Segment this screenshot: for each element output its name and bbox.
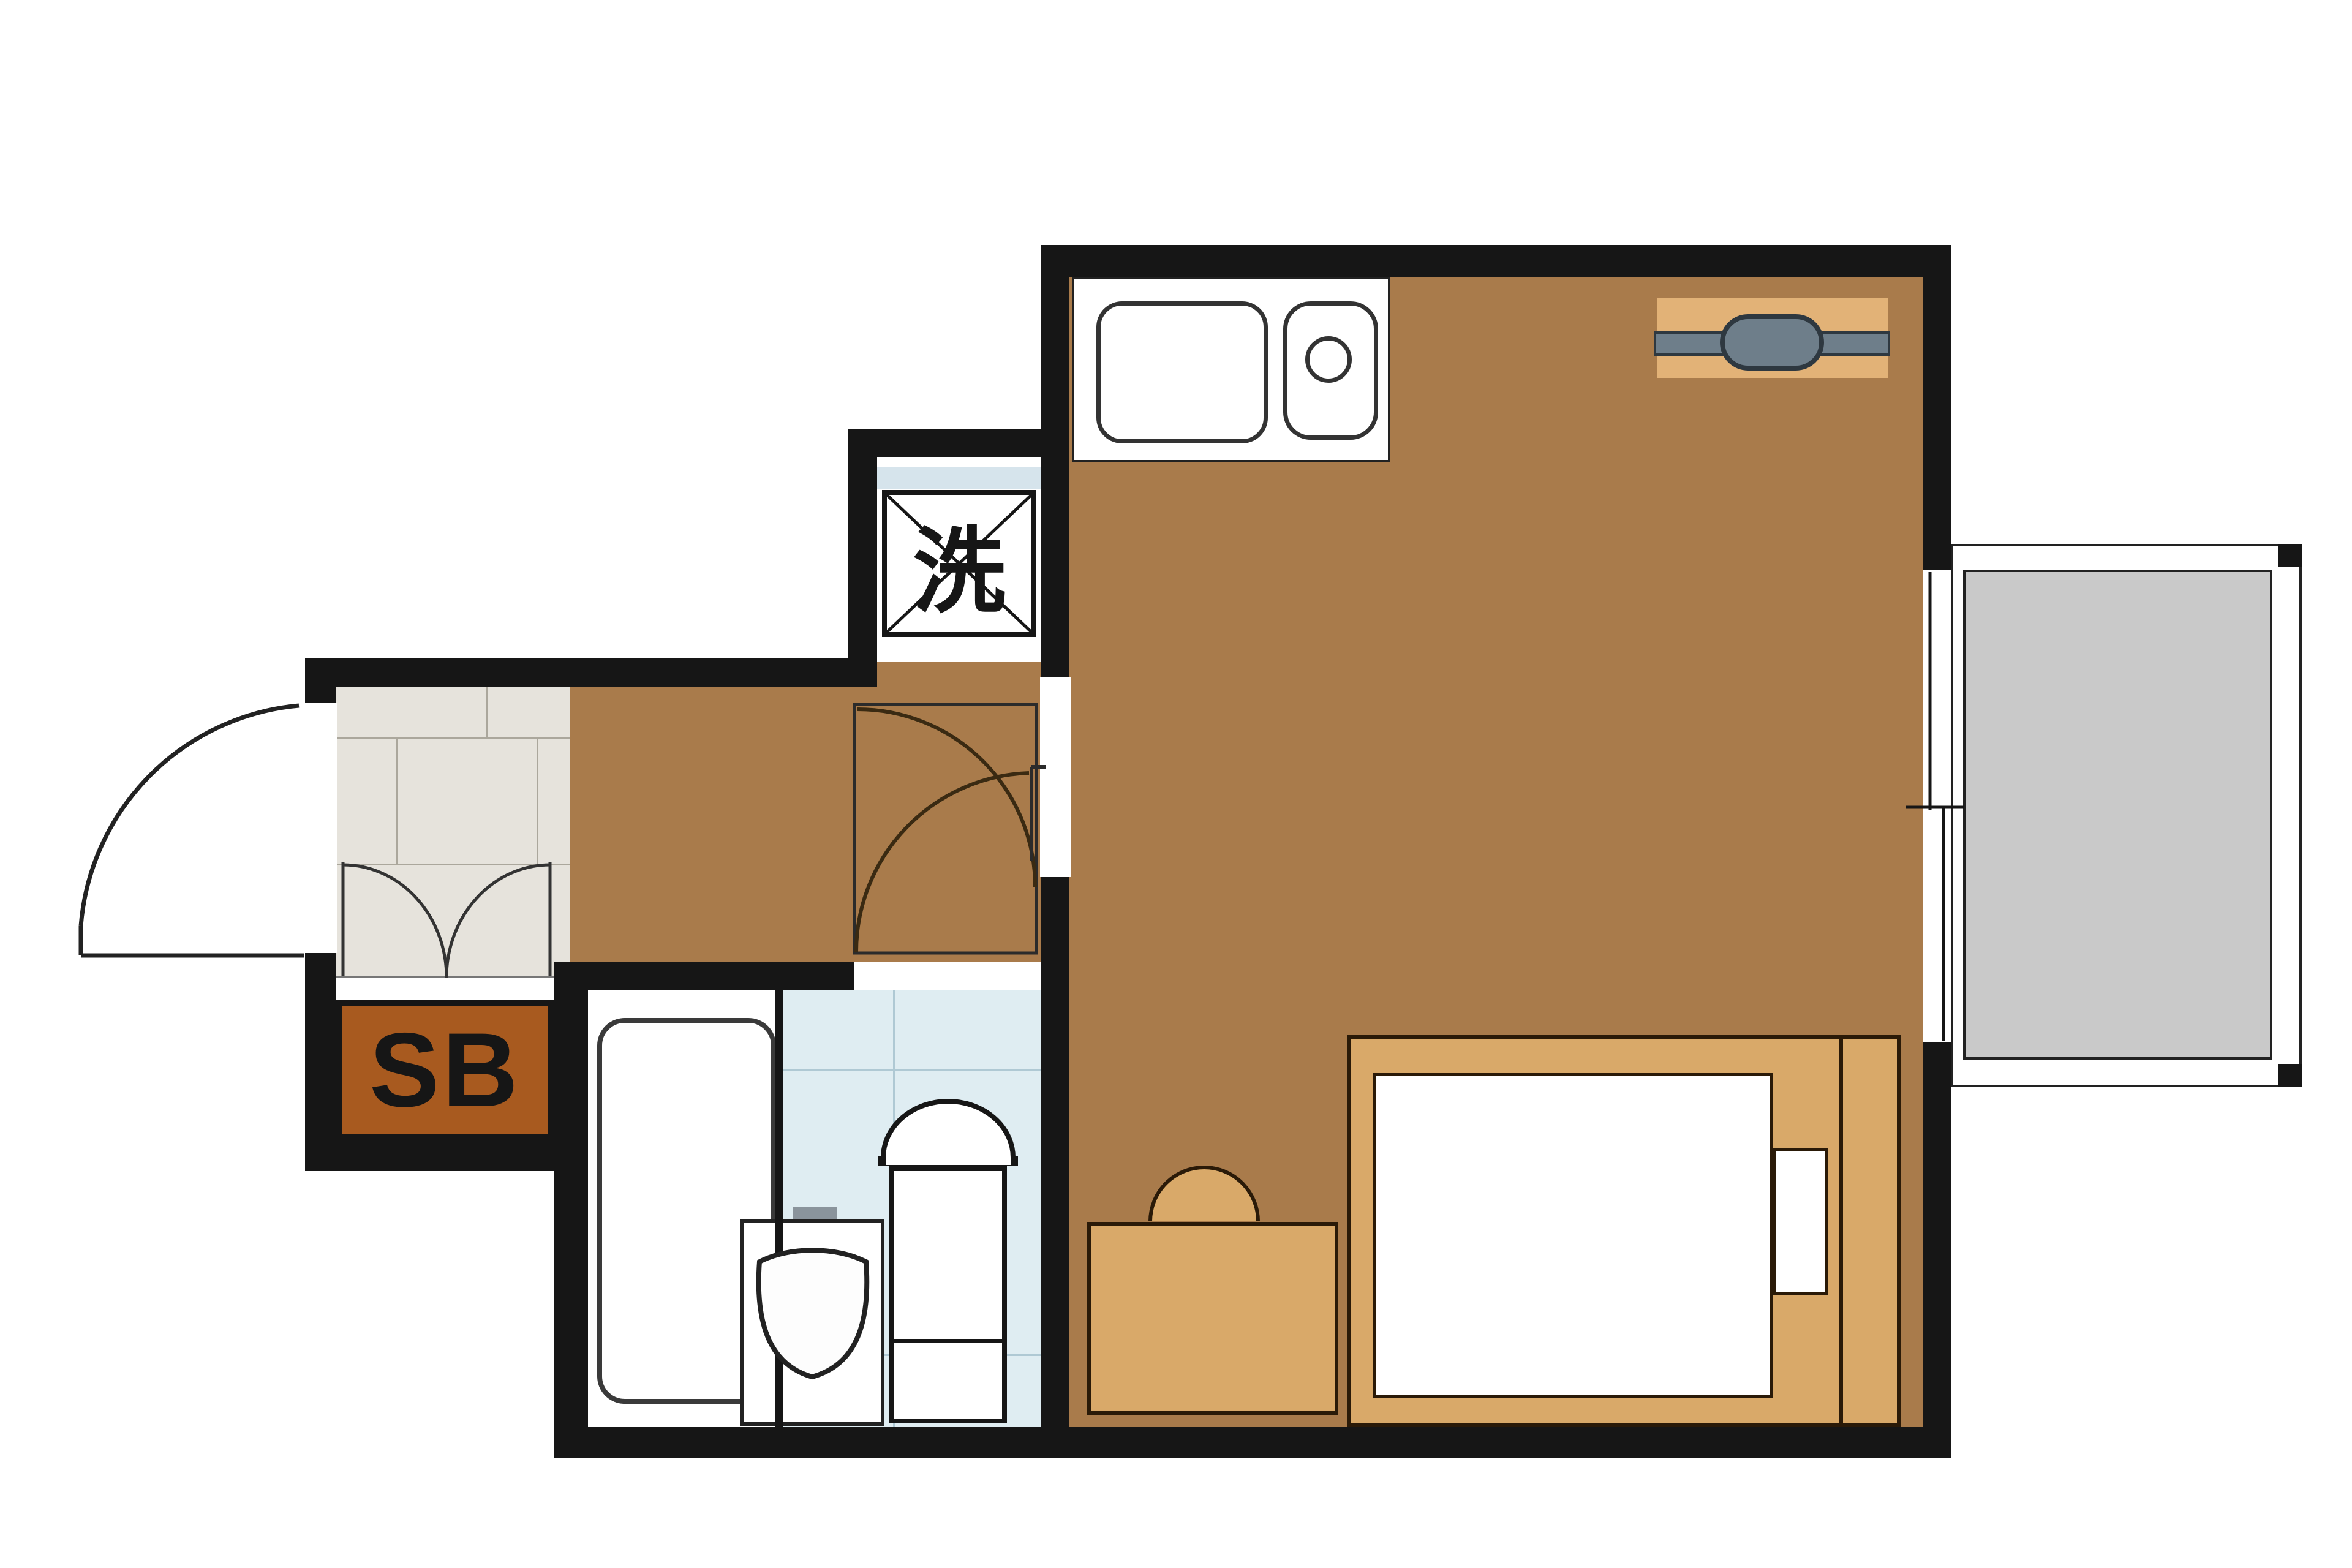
balcony-corner-mark [2278, 1064, 2302, 1087]
balcony-corner-mark [2278, 544, 2302, 567]
room-door-opening [1040, 677, 1071, 877]
washing-machine-label: 洗 [882, 490, 1036, 637]
wall-bathroom-right [1041, 962, 1069, 1427]
wall-niche-left [848, 457, 877, 661]
kitchen-sink-basin [1096, 301, 1268, 443]
genkan-tile-joint [486, 687, 488, 739]
wall-genkan-top [305, 658, 877, 687]
bath-tile-joint [783, 1069, 1041, 1071]
toilet-seat-line [878, 1156, 1018, 1166]
genkan-step [336, 976, 554, 1000]
wall-genkan-left-lower [305, 953, 336, 1171]
toilet-tank-line [889, 1339, 1007, 1343]
washer-niche-floor-strip [877, 661, 1041, 689]
washbasin-cabinet [740, 1219, 884, 1426]
hanger-slider-icon [1720, 314, 1824, 371]
genkan-tile-joint [336, 737, 570, 739]
bed-pillow [1773, 1148, 1828, 1295]
wall-top [1041, 245, 1951, 277]
balcony-window-opening [1923, 570, 1951, 1042]
entrance-door-arc [81, 706, 299, 926]
wall-room-left-upper [1041, 277, 1069, 677]
genkan-tile-joint [396, 737, 398, 865]
bathroom-partition-line [775, 990, 783, 1427]
table [1087, 1222, 1338, 1415]
entrance-door-opening [303, 703, 337, 953]
washer-niche-counter-strip [877, 467, 1041, 489]
hallway-floor [570, 687, 1041, 962]
balcony-deck [1963, 570, 2272, 1060]
wall-bathroom-left [554, 962, 588, 1458]
bed-headboard-line [1839, 1035, 1843, 1427]
wall-room-left-mid [1041, 877, 1069, 962]
toilet-tank [889, 1166, 1007, 1423]
genkan-tile-joint [537, 737, 538, 865]
entrance-door-symbol [81, 706, 304, 956]
genkan-tile-floor [336, 687, 570, 976]
shoe-box-label: SB [336, 1000, 554, 1140]
wall-genkan-left-stub [305, 687, 336, 703]
wall-shoebox-bottom [305, 1140, 588, 1171]
floor-plan: 洗 SB [0, 0, 2352, 1568]
wall-bathroom-top [554, 962, 854, 990]
wall-bottom [554, 1427, 1951, 1458]
wall-niche-top [848, 429, 1069, 457]
bed-mattress [1373, 1073, 1773, 1398]
entrance-door-leaf [81, 926, 304, 956]
wall-right-upper [1923, 277, 1951, 570]
wall-right-lower [1923, 1042, 1951, 1427]
bathroom-door-opening [854, 962, 1041, 990]
kitchen-burner-icon [1305, 336, 1352, 383]
genkan-tile-joint [336, 864, 570, 865]
